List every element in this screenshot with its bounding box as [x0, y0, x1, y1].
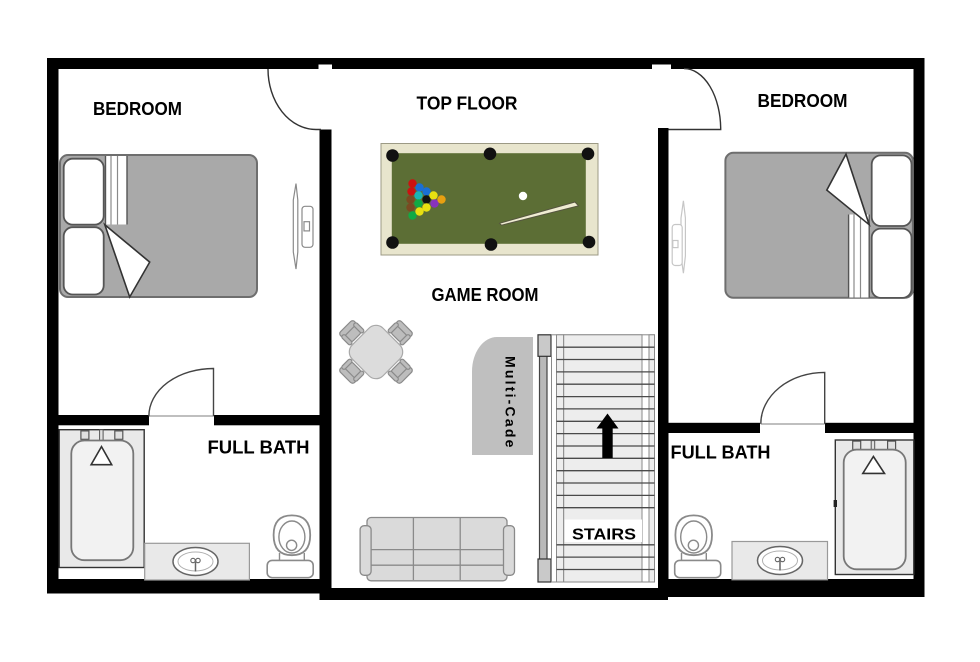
- svg-text:BEDROOM: BEDROOM: [93, 99, 182, 119]
- svg-text:GAME ROOM: GAME ROOM: [432, 285, 539, 305]
- svg-text:STAIRS: STAIRS: [572, 527, 636, 544]
- svg-text:Multi-Cade: Multi-Cade: [503, 356, 519, 450]
- svg-text:BEDROOM: BEDROOM: [758, 91, 848, 111]
- svg-text:FULL BATH: FULL BATH: [208, 438, 310, 458]
- svg-text:TOP FLOOR: TOP FLOOR: [417, 94, 518, 114]
- svg-text:FULL BATH: FULL BATH: [671, 443, 771, 463]
